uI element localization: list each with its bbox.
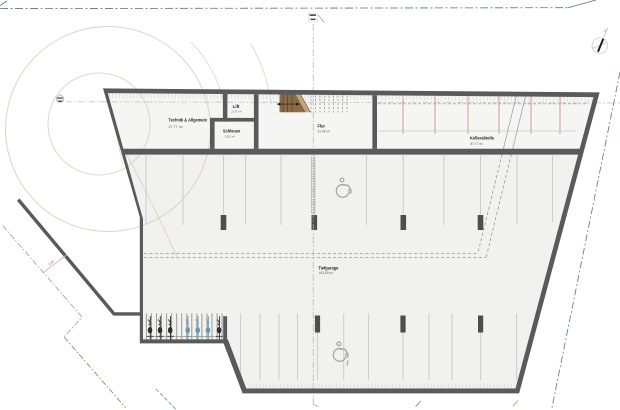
svg-text:Kellerabteile: Kellerabteile (470, 136, 495, 141)
svg-text:Tiefgarage: Tiefgarage (318, 266, 338, 271)
svg-text:Lift: Lift (233, 104, 240, 109)
svg-text:443,59 m²: 443,59 m² (319, 271, 334, 275)
svg-text:Schleuse: Schleuse (223, 128, 241, 133)
svg-text:Flur: Flur (318, 123, 326, 128)
svg-text:N: N (604, 29, 607, 33)
svg-text:27,77 m²: 27,77 m² (169, 125, 184, 129)
svg-text:Technik & Allgemein: Technik & Allgemein (169, 117, 208, 122)
svg-text:31,08 m²: 31,08 m² (318, 130, 331, 134)
svg-text:3,00: 3,00 (47, 259, 55, 266)
svg-text:2,07 m²: 2,07 m² (231, 109, 242, 113)
svg-text:57,77 m²: 57,77 m² (471, 142, 484, 146)
svg-text:5,01 m²: 5,01 m² (225, 134, 236, 138)
